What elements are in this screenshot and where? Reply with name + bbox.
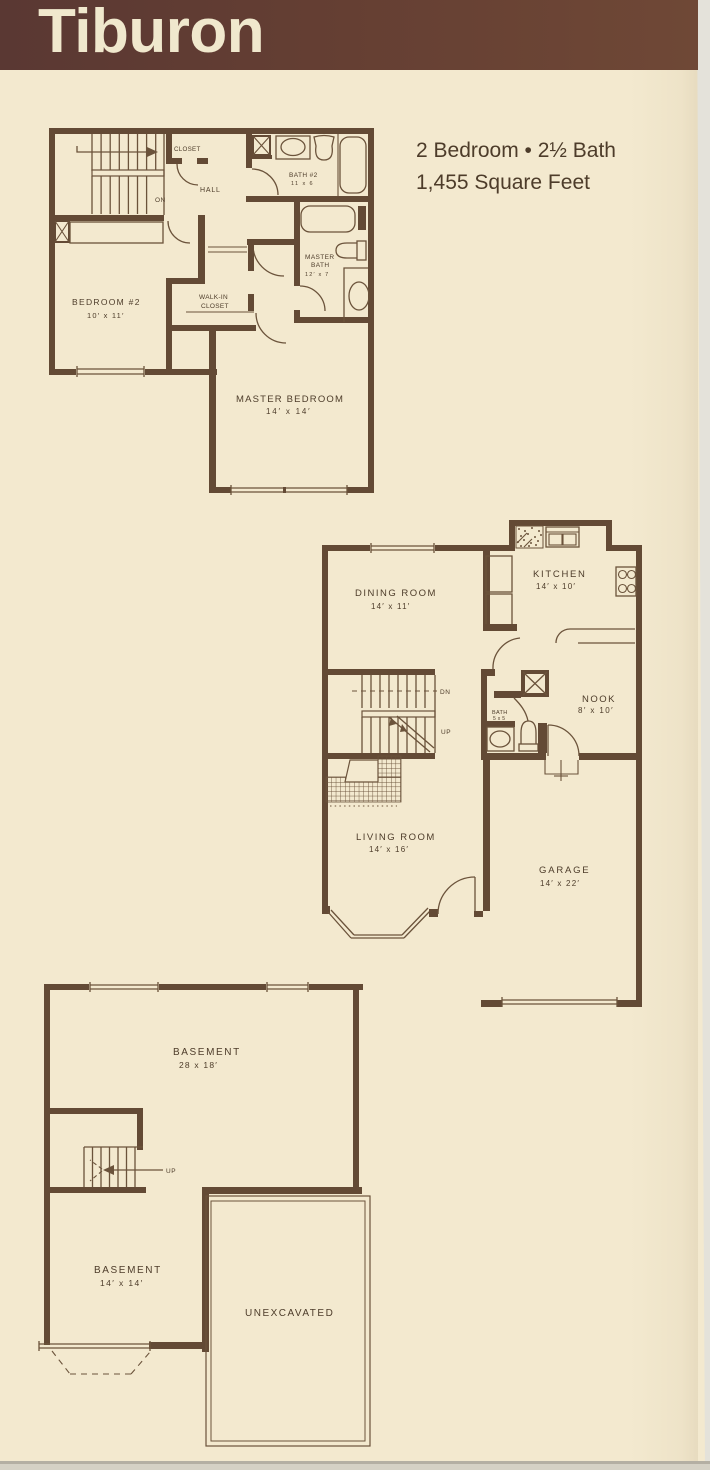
- svg-text:5 x 5: 5 x 5: [493, 716, 505, 722]
- svg-text:10′ x 11′: 10′ x 11′: [87, 311, 125, 320]
- svg-text:1,455 Square Feet: 1,455 Square Feet: [416, 171, 590, 194]
- svg-text:LIVING ROOM: LIVING ROOM: [356, 832, 436, 843]
- svg-text:UNEXCAVATED: UNEXCAVATED: [245, 1308, 334, 1319]
- svg-text:14′ x 10′: 14′ x 10′: [536, 582, 576, 591]
- svg-text:ON: ON: [155, 197, 166, 204]
- svg-text:DINING ROOM: DINING ROOM: [355, 588, 437, 599]
- svg-text:BATH #2: BATH #2: [289, 172, 318, 179]
- svg-text:HALL: HALL: [200, 187, 221, 194]
- svg-text:BATH: BATH: [311, 262, 329, 269]
- svg-text:NOOK: NOOK: [582, 694, 616, 705]
- svg-text:CLOSET: CLOSET: [201, 303, 229, 310]
- svg-text:BASEMENT: BASEMENT: [94, 1265, 162, 1276]
- svg-text:GARAGE: GARAGE: [539, 865, 590, 876]
- svg-text:BEDROOM #2: BEDROOM #2: [72, 297, 141, 307]
- svg-text:2 Bedroom • 2½ Bath: 2 Bedroom • 2½ Bath: [416, 139, 616, 162]
- svg-text:UP: UP: [441, 729, 451, 736]
- svg-text:KITCHEN: KITCHEN: [533, 569, 587, 580]
- svg-text:12′ x 7: 12′ x 7: [305, 272, 329, 278]
- svg-text:UP: UP: [166, 1168, 176, 1175]
- svg-text:MASTER: MASTER: [305, 254, 335, 261]
- svg-text:MASTER BEDROOM: MASTER BEDROOM: [236, 394, 344, 405]
- svg-text:WALK-IN: WALK-IN: [199, 294, 228, 301]
- svg-text:14′ x 14′: 14′ x 14′: [266, 407, 311, 416]
- svg-text:DN: DN: [440, 689, 450, 696]
- svg-text:8′ x 10′: 8′ x 10′: [578, 706, 614, 715]
- svg-text:14′ x 14′: 14′ x 14′: [100, 1278, 144, 1288]
- svg-text:28 x 18′: 28 x 18′: [179, 1060, 218, 1070]
- svg-text:BASEMENT: BASEMENT: [173, 1047, 241, 1058]
- svg-text:14′ x 22′: 14′ x 22′: [540, 879, 580, 888]
- svg-text:11 x 6: 11 x 6: [291, 181, 314, 187]
- svg-text:14′ x 16′: 14′ x 16′: [369, 845, 409, 854]
- svg-text:Tiburon: Tiburon: [38, 0, 264, 66]
- svg-text:CLOSET: CLOSET: [174, 146, 201, 153]
- svg-text:14′ x 11′: 14′ x 11′: [371, 602, 410, 611]
